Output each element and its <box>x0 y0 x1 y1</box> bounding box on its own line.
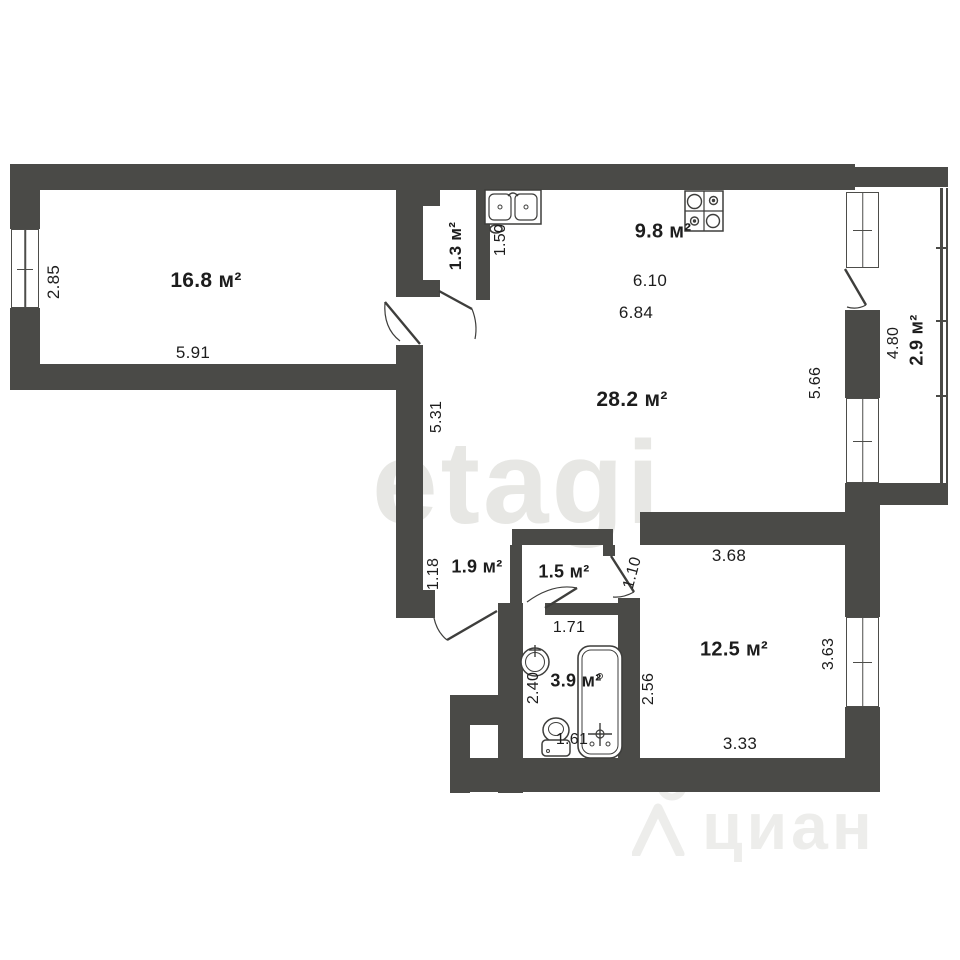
floor-plan: etagi циан <box>0 0 960 960</box>
room-area-label: 1.3 м² <box>446 222 466 270</box>
room-area-label: 28.2 м² <box>596 388 667 412</box>
dimension-label: 3.68 <box>712 546 746 566</box>
room-area-label: 9.8 м² <box>635 221 692 244</box>
dimension-label: 2.40 <box>525 672 543 704</box>
dimension-label: 1.50 <box>492 224 510 256</box>
room-area-label: 1.5 м² <box>538 562 589 583</box>
dimension-label: 1.61 <box>556 731 588 749</box>
dimension-label: 3.33 <box>723 734 757 754</box>
dimension-label: 1.71 <box>553 619 585 637</box>
dimension-label: 1.18 <box>425 558 443 590</box>
room-area-label: 16.8 м² <box>170 269 241 293</box>
dimension-label: 3.63 <box>820 638 838 670</box>
room-area-label: 12.5 м² <box>700 639 768 662</box>
room-area-label: 3.9 м² <box>550 671 601 692</box>
dimension-label: 6.84 <box>619 303 653 323</box>
dimension-label: 5.66 <box>807 367 825 399</box>
dimension-label: 6.10 <box>633 271 667 291</box>
dimension-label: 5.91 <box>176 343 210 363</box>
room-area-label: 1.9 м² <box>451 557 502 578</box>
room-area-label: 2.9 м² <box>907 314 928 365</box>
dimension-label: 2.56 <box>640 673 658 705</box>
dimension-label: 2.85 <box>44 265 64 299</box>
fixtures-layer <box>0 0 960 960</box>
dimension-label: 4.80 <box>885 327 903 359</box>
dimension-label: 5.31 <box>428 401 446 433</box>
